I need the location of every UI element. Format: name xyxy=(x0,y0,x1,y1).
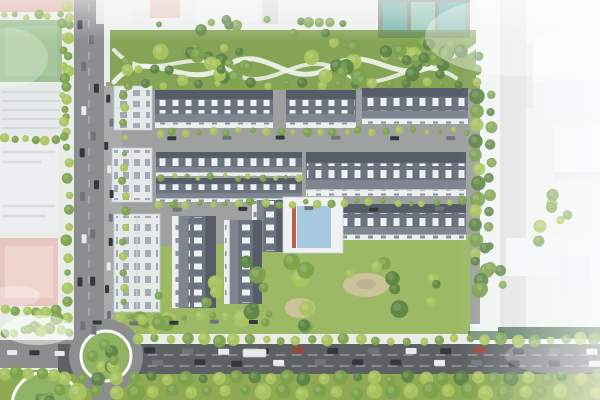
scene-root xyxy=(0,0,600,400)
apartment-block-west xyxy=(114,214,160,312)
townhouse-row-2a-south xyxy=(156,178,302,202)
townhouse-row-3-east xyxy=(336,204,466,240)
townhouse-row-1a xyxy=(155,90,273,128)
boulevard-bus xyxy=(243,349,266,357)
townhouse-column-a xyxy=(172,216,216,308)
apartment-block-row2-end xyxy=(112,148,152,202)
townhouse-row-1c xyxy=(362,88,468,124)
industrial-hall-b xyxy=(0,142,58,232)
clubhouse-accent-wall xyxy=(292,206,296,248)
masterplan-aerial-view xyxy=(0,0,600,400)
clubhouse-glass-atrium xyxy=(297,206,331,248)
sand-patch-rocks xyxy=(356,279,376,289)
townhouse-row-1b xyxy=(286,90,356,128)
cloud-wisp-1 xyxy=(2,315,74,345)
townhouse-row-2a-north xyxy=(156,152,302,176)
townhouse-row-2b xyxy=(306,152,466,196)
aerial-render-canvas xyxy=(0,0,600,400)
